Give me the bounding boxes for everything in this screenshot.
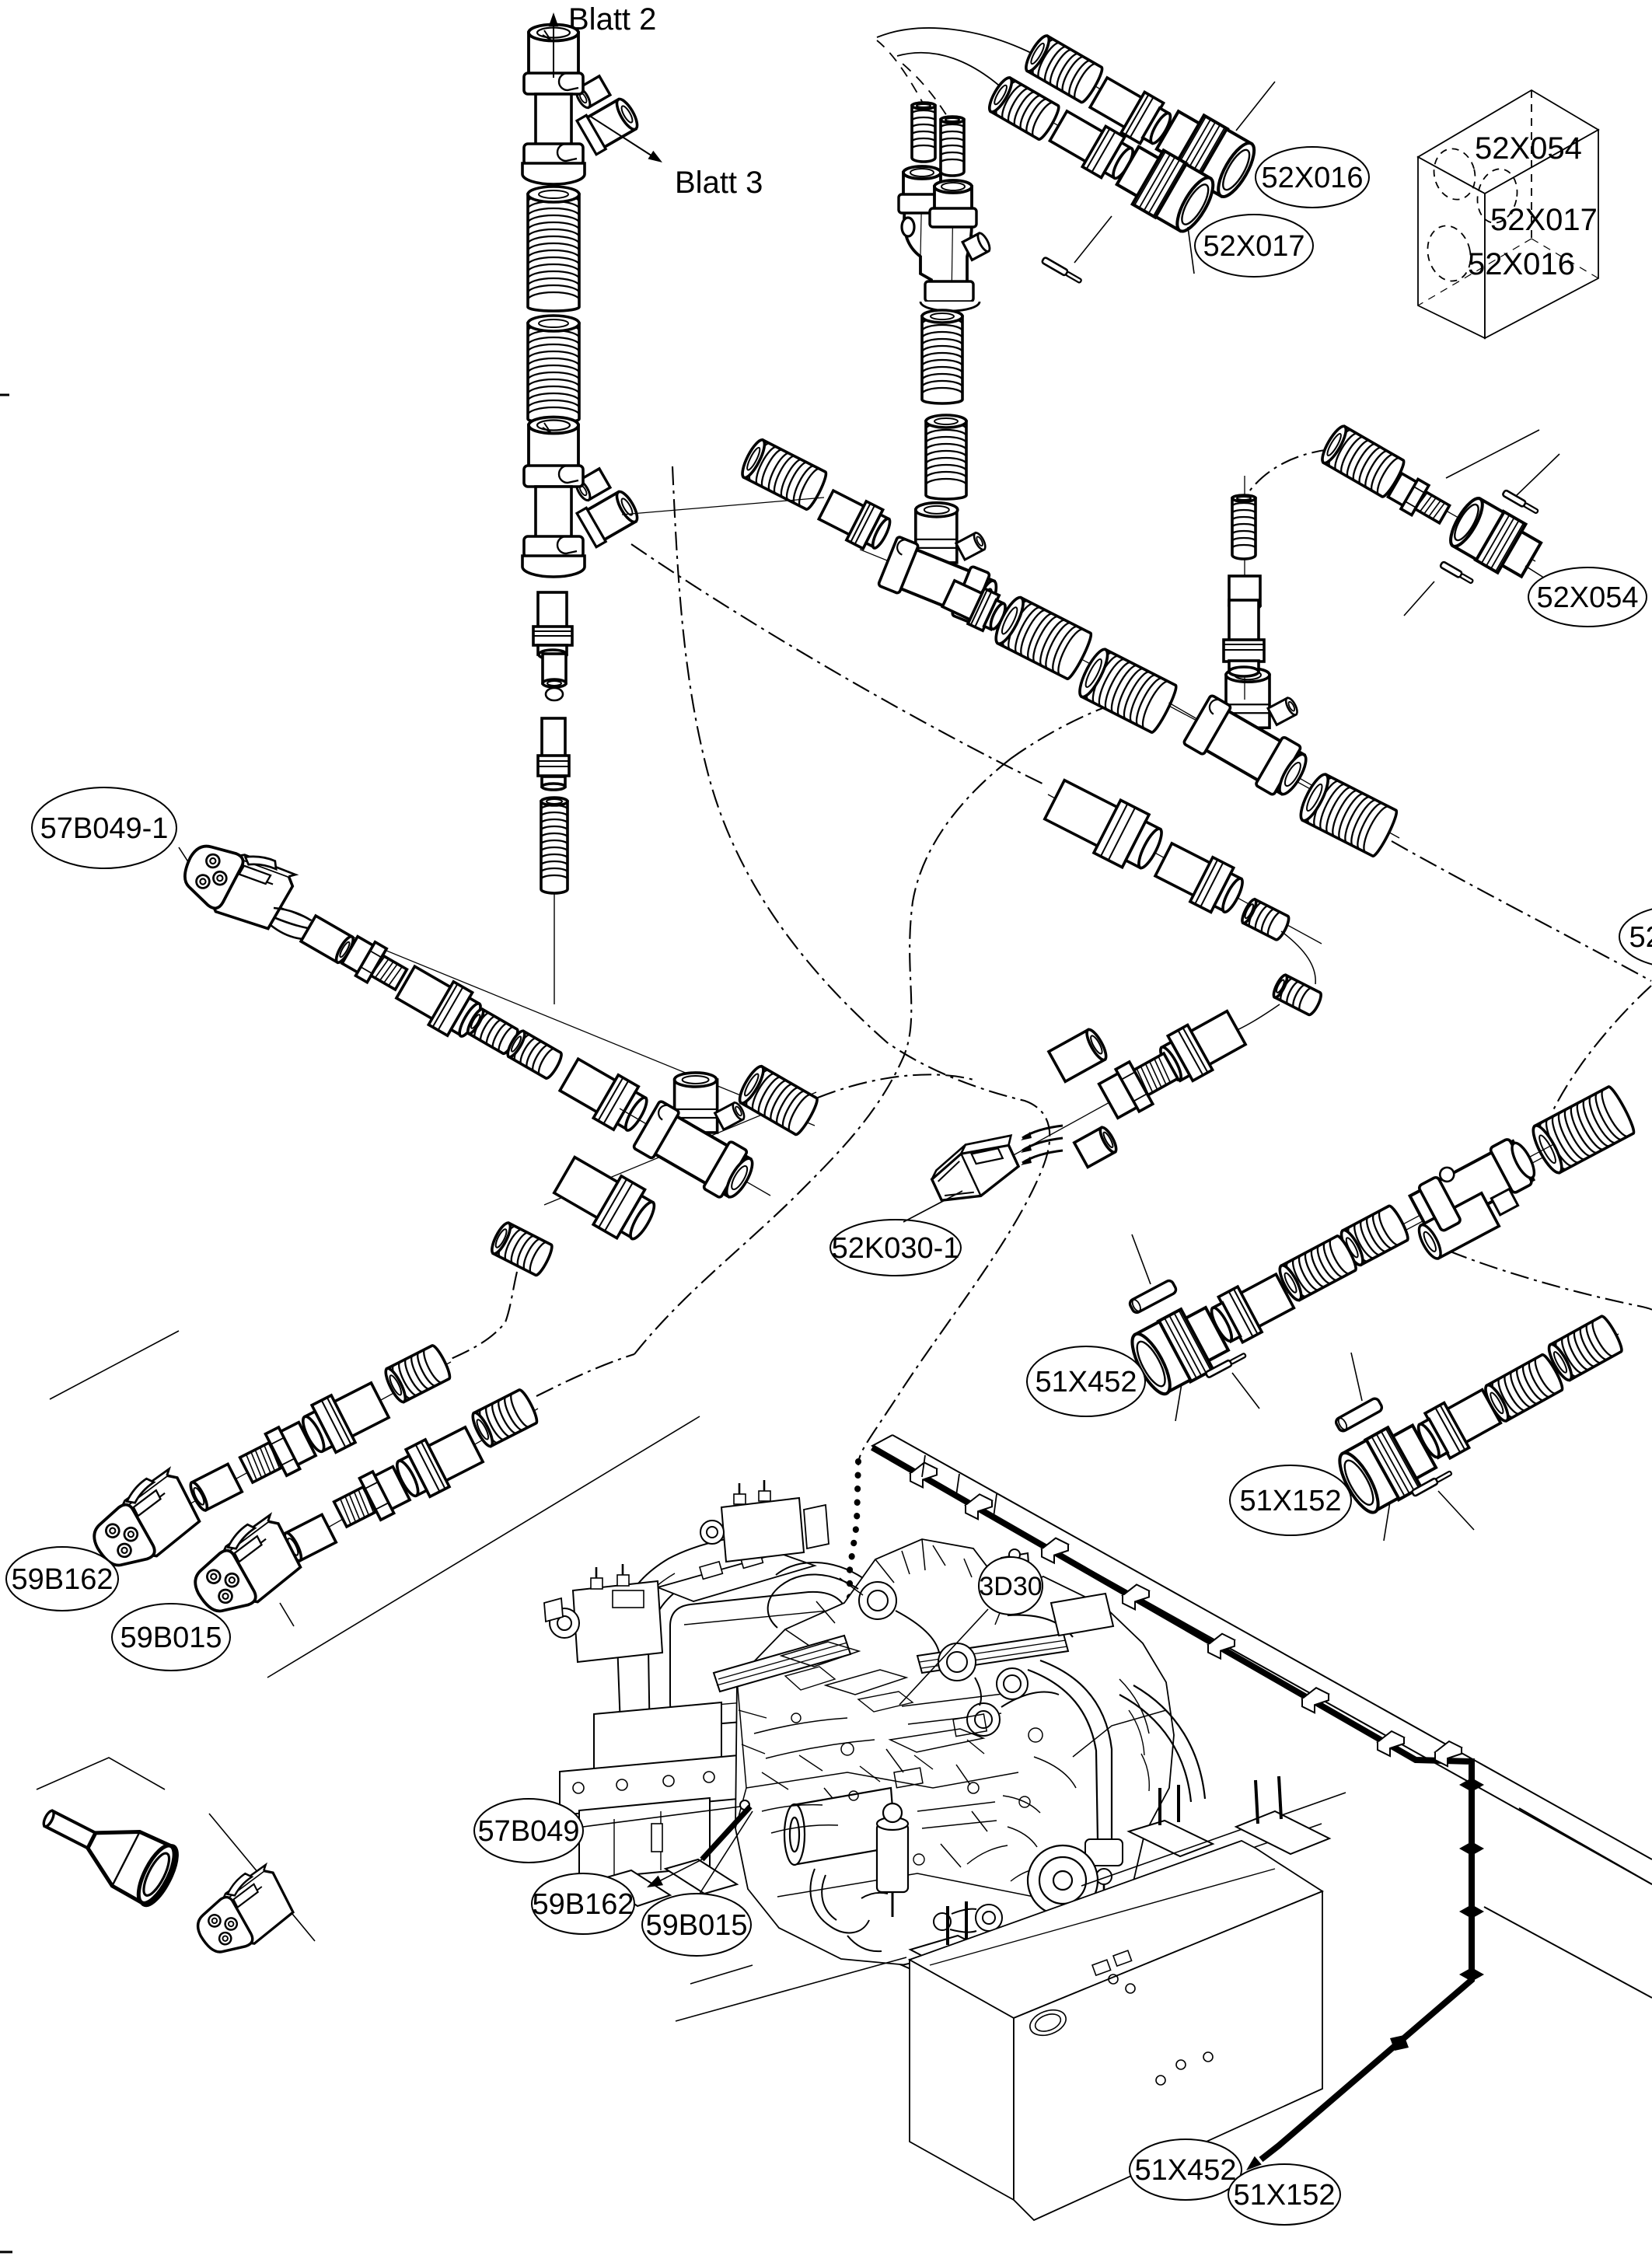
svg-text:52X016: 52X016 [1468,247,1575,281]
svg-text:51X452: 51X452 [1134,2154,1236,2187]
svg-text:59B015: 59B015 [645,1909,747,1942]
svg-text:52X016: 52X016 [1261,162,1363,194]
svg-text:52X017: 52X017 [1203,230,1304,263]
svg-text:52K030-1: 52K030-1 [832,1232,960,1265]
svg-text:52X054: 52X054 [1629,921,1652,954]
svg-text:52X054: 52X054 [1536,581,1638,614]
svg-text:52X054: 52X054 [1475,131,1582,166]
svg-text:59B015: 59B015 [120,1622,222,1654]
svg-text:57B049-1: 57B049-1 [40,812,169,845]
svg-text:51X152: 51X152 [1233,2179,1335,2212]
svg-text:59B162: 59B162 [532,1888,634,1921]
svg-text:52X017: 52X017 [1490,203,1598,237]
svg-text:59B162: 59B162 [11,1563,113,1596]
svg-text:51X152: 51X152 [1239,1485,1341,1517]
svg-text:57B049: 57B049 [477,1815,579,1848]
svg-text:Blatt 2: Blatt 2 [568,2,656,37]
svg-text:Blatt 3: Blatt 3 [675,166,763,200]
svg-text:3D30: 3D30 [979,1572,1042,1601]
svg-text:51X452: 51X452 [1035,1366,1137,1398]
